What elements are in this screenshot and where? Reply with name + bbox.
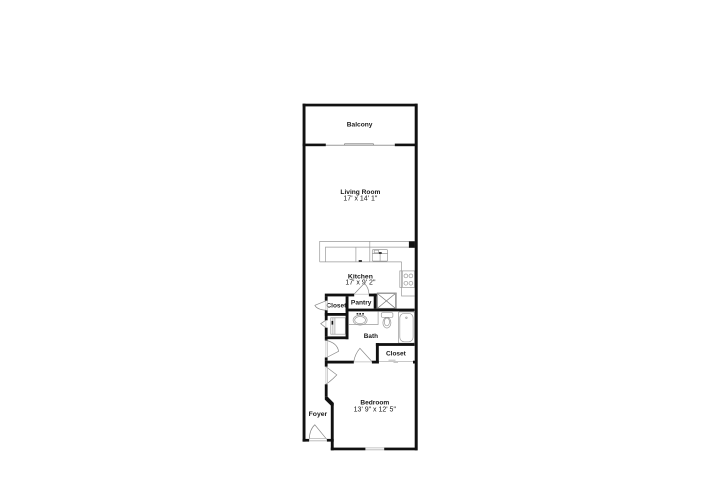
- svg-text:Bedroom: Bedroom: [360, 400, 389, 407]
- svg-text:17' x 9' 2": 17' x 9' 2": [345, 280, 376, 287]
- svg-text:Bath: Bath: [364, 333, 378, 340]
- svg-text:Foyer: Foyer: [309, 411, 328, 418]
- svg-text:17' x 14' 1": 17' x 14' 1": [343, 196, 377, 203]
- svg-text:Closet: Closet: [326, 303, 347, 310]
- svg-text:Balcony: Balcony: [347, 122, 373, 129]
- svg-text:Closet: Closet: [386, 350, 407, 357]
- svg-text:Pantry: Pantry: [351, 299, 372, 306]
- svg-text:13' 9" x 12' 5": 13' 9" x 12' 5": [354, 407, 397, 414]
